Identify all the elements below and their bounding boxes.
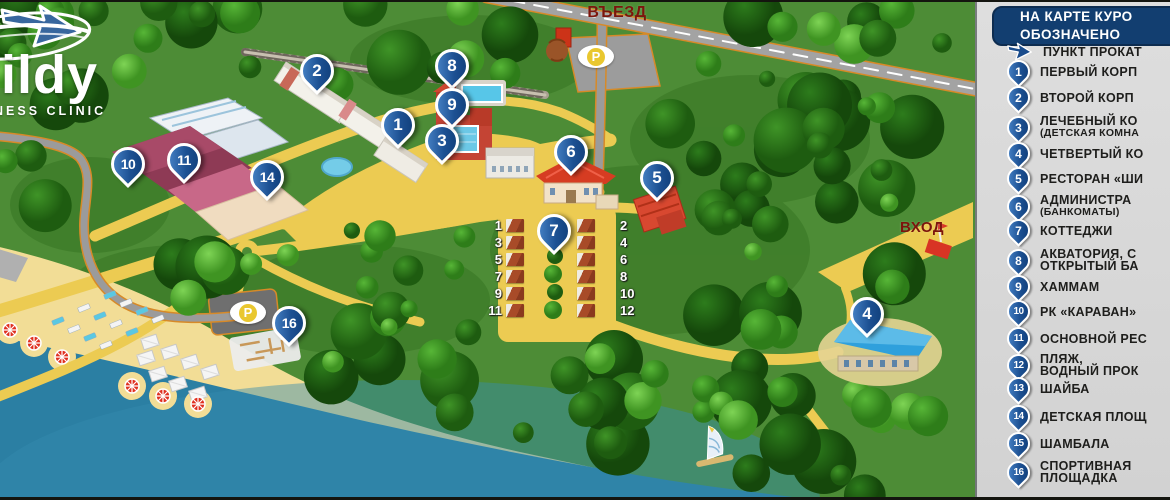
legend-item-line: РЕСТОРАН «ШИ: [1040, 173, 1143, 185]
map-marker-number: 11: [170, 146, 198, 174]
cottage: [577, 304, 595, 317]
legend-pin-number: 16: [1009, 463, 1028, 482]
cottage-number-left: 7: [472, 269, 502, 284]
cottage-number-left: 11: [472, 303, 502, 318]
legend-item-5: 5РЕСТОРАН «ШИ: [1007, 167, 1170, 190]
map-marker-number: 7: [540, 217, 568, 245]
legend-pin-number: 13: [1009, 379, 1028, 398]
legend-item-1: 1ПЕРВЫЙ КОРП: [1007, 60, 1170, 83]
cottage: [577, 236, 595, 249]
map-marker-number: 4: [853, 300, 881, 328]
legend-pin-icon-6: 6: [1002, 190, 1035, 223]
legend-item-line: (БАНКОМАТЫ): [1040, 206, 1131, 218]
legend-item-line: ШАЙБА: [1040, 383, 1090, 395]
legend-item-label: АКВАТОРИЯ, СОТКРЫТЫЙ БА: [1040, 248, 1139, 272]
legend-item-line: ПУНКТ ПРОКАТ: [1043, 46, 1142, 58]
rental-point-arrow-icon: [0, 0, 84, 48]
legend-title-line2: ОБОЗНАЧЕНО: [1020, 26, 1120, 44]
legend-item-label: ЧЕТВЕРТЫЙ КО: [1040, 148, 1144, 160]
legend-pin-number: 7: [1009, 221, 1028, 240]
resort-map: vildy NESS CLINIC ВЪЕЗД ВХОД 12345678910…: [0, 0, 978, 500]
legend-item-label: АДМИНИСТРА(БАНКОМАТЫ): [1040, 194, 1131, 218]
legend-item-16: 16СПОРТИВНАЯПЛОЩАДКА: [1007, 460, 1170, 484]
legend-pin-number: 12: [1009, 356, 1028, 375]
cottage-number-left: 3: [472, 235, 502, 250]
legend-item-line: ДЕТСКАЯ ПЛОЩ: [1040, 411, 1147, 423]
legend-pin-number: 10: [1009, 302, 1028, 321]
legend-pin-icon-4: 4: [1002, 137, 1035, 170]
legend-pin-icon-11: 11: [1002, 322, 1035, 355]
cottage-number-right: 4: [620, 235, 627, 250]
map-marker-number: 5: [643, 164, 671, 192]
legend-item-15: 15ШАМБАЛА: [1007, 432, 1170, 455]
cottage: [577, 253, 595, 266]
legend-pin-icon-16: 16: [1002, 456, 1035, 489]
cottage: [577, 219, 595, 232]
parking-lot-north: [566, 34, 660, 92]
legend-pin-number: 6: [1009, 197, 1028, 216]
legend-item-label: ВТОРОЙ КОРП: [1040, 92, 1134, 104]
cottage: [577, 287, 595, 300]
legend-pin-number: 4: [1009, 144, 1028, 163]
map-artwork: [0, 0, 978, 500]
legend-item-line: ПЛОЩАДКА: [1040, 472, 1132, 484]
cottage: [506, 270, 524, 283]
cottage-number-right: 12: [620, 303, 634, 318]
legend-item-label: ЛЕЧЕБНЫЙ КО(ДЕТСКАЯ КОМНА: [1040, 115, 1139, 139]
legend-item-line: ШАМБАЛА: [1040, 438, 1110, 450]
legend-pin-icon-14: 14: [1002, 400, 1035, 433]
legend-pin-number: 9: [1009, 277, 1028, 296]
cottage: [577, 270, 595, 283]
image-top-edge: [0, 0, 1170, 2]
legend-item-label: ПУНКТ ПРОКАТ: [1043, 46, 1142, 58]
legend-item-8: 8АКВАТОРИЯ, СОТКРЫТЫЙ БА: [1007, 248, 1170, 272]
legend-pin-number: 15: [1009, 434, 1028, 453]
legend-pin-number: 3: [1009, 118, 1028, 137]
legend-item-label: ХАММАМ: [1040, 281, 1099, 293]
map-marker-number: 14: [253, 163, 281, 191]
legend-item-12: 12ПЛЯЖ,ВОДНЫЙ ПРОК: [1007, 353, 1170, 377]
cottage: [506, 236, 524, 249]
map-marker-number: 2: [303, 57, 331, 85]
legend-pin-icon-10: 10: [1002, 295, 1035, 328]
legend-pin-number: 14: [1009, 407, 1028, 426]
legend-item-label: РК «КАРАВАН»: [1040, 306, 1136, 318]
legend-item-line: ПЕРВЫЙ КОРП: [1040, 66, 1137, 78]
legend-item-label: СПОРТИВНАЯПЛОЩАДКА: [1040, 460, 1132, 484]
cottage-number-left: 5: [472, 252, 502, 267]
legend-item-line: АДМИНИСТРА: [1040, 194, 1131, 206]
legend-title-line1: НА КАРТЕ КУРО: [1020, 8, 1133, 26]
cottage-number-left: 1: [472, 218, 502, 233]
map-marker-number: 1: [384, 111, 412, 139]
label-entrance-side: ВХОД: [893, 219, 951, 236]
legend-item-line: РК «КАРАВАН»: [1040, 306, 1136, 318]
cottage: [506, 219, 524, 232]
legend-item-2: 2ВТОРОЙ КОРП: [1007, 86, 1170, 109]
map-marker-number: 8: [438, 52, 466, 80]
legend-item-7: 7КОТТЕДЖИ: [1007, 219, 1170, 242]
legend-pin-icon-2: 2: [1002, 81, 1035, 114]
pond: [322, 158, 352, 176]
legend-item-line: ОТКРЫТЫЙ БА: [1040, 260, 1139, 272]
legend-item-13: 13ШАЙБА: [1007, 377, 1170, 400]
legend-item-line: ХАММАМ: [1040, 281, 1099, 293]
legend-item-line: ВТОРОЙ КОРП: [1040, 92, 1134, 104]
cottage-number-right: 2: [620, 218, 627, 233]
cottage-number-right: 8: [620, 269, 627, 284]
legend-item-label: ПЕРВЫЙ КОРП: [1040, 66, 1137, 78]
legend-item-6: 6АДМИНИСТРА(БАНКОМАТЫ): [1007, 194, 1170, 218]
legend-item-label: КОТТЕДЖИ: [1040, 225, 1113, 237]
legend-item-line: КОТТЕДЖИ: [1040, 225, 1113, 237]
legend-item-4: 4ЧЕТВЕРТЫЙ КО: [1007, 142, 1170, 165]
legend-item-label: РЕСТОРАН «ШИ: [1040, 173, 1143, 185]
map-marker-number: 9: [438, 91, 466, 119]
legend-item-label: ШАЙБА: [1040, 383, 1090, 395]
legend-pin-number: 11: [1009, 329, 1028, 348]
legend-pin-icon-9: 9: [1002, 270, 1035, 303]
map-marker-number: 3: [428, 127, 456, 155]
map-marker-number: 10: [114, 150, 142, 178]
cottage-number-right: 6: [620, 252, 627, 267]
parking-letter: P: [239, 304, 257, 322]
parking-sign-1: P: [578, 45, 614, 68]
legend-title: НА КАРТЕ КУРО ОБОЗНАЧЕНО: [992, 6, 1170, 46]
legend-item-9: 9ХАММАМ: [1007, 275, 1170, 298]
legend-pin-icon-3: 3: [1002, 111, 1035, 144]
map-marker-number: 16: [275, 309, 303, 337]
cottage: [506, 287, 524, 300]
legend-pin-number: 8: [1009, 251, 1028, 270]
cottage-number-left: 9: [472, 286, 502, 301]
parking-letter: P: [587, 48, 605, 66]
legend-item-line: (ДЕТСКАЯ КОМНА: [1040, 127, 1139, 139]
legend-item-14: 14ДЕТСКАЯ ПЛОЩ: [1007, 405, 1170, 428]
legend-item-label: ДЕТСКАЯ ПЛОЩ: [1040, 411, 1147, 423]
map-legend: НА КАРТЕ КУРО ОБОЗНАЧЕНО ПУНКТ ПРОКАТ1ПЕ…: [975, 0, 1170, 500]
map-marker-number: 6: [557, 138, 585, 166]
legend-pin-icon-8: 8: [1002, 244, 1035, 277]
legend-item-line: ЧЕТВЕРТЫЙ КО: [1040, 148, 1144, 160]
cottage: [506, 304, 524, 317]
legend-pin-icon-15: 15: [1002, 427, 1035, 460]
legend-item-line: ВОДНЫЙ ПРОК: [1040, 365, 1139, 377]
legend-item-11: 11ОСНОВНОЙ РЕС: [1007, 327, 1170, 350]
legend-pin-number: 1: [1009, 62, 1028, 81]
legend-item-line: ОСНОВНОЙ РЕС: [1040, 333, 1147, 345]
cottage-number-right: 10: [620, 286, 634, 301]
legend-pin-icon-1: 1: [1002, 55, 1035, 88]
legend-pin-icon-13: 13: [1002, 372, 1035, 405]
legend-item-label: ШАМБАЛА: [1040, 438, 1110, 450]
legend-item-rental: ПУНКТ ПРОКАТ: [1007, 42, 1170, 62]
legend-item-label: ПЛЯЖ,ВОДНЫЙ ПРОК: [1040, 353, 1139, 377]
legend-pin-number: 2: [1009, 88, 1028, 107]
legend-pin-number: 5: [1009, 169, 1028, 188]
legend-item-10: 10РК «КАРАВАН»: [1007, 300, 1170, 323]
legend-pin-icon-7: 7: [1002, 214, 1035, 247]
parking-sign-2: P: [230, 301, 266, 324]
legend-item-label: ОСНОВНОЙ РЕС: [1040, 333, 1147, 345]
legend-item-3: 3ЛЕЧЕБНЫЙ КО(ДЕТСКАЯ КОМНА: [1007, 115, 1170, 139]
cottage: [506, 253, 524, 266]
legend-pin-icon-5: 5: [1002, 162, 1035, 195]
legend-item-line: ЛЕЧЕБНЫЙ КО: [1040, 115, 1139, 127]
label-entrance-top: ВЪЕЗД: [575, 4, 659, 22]
